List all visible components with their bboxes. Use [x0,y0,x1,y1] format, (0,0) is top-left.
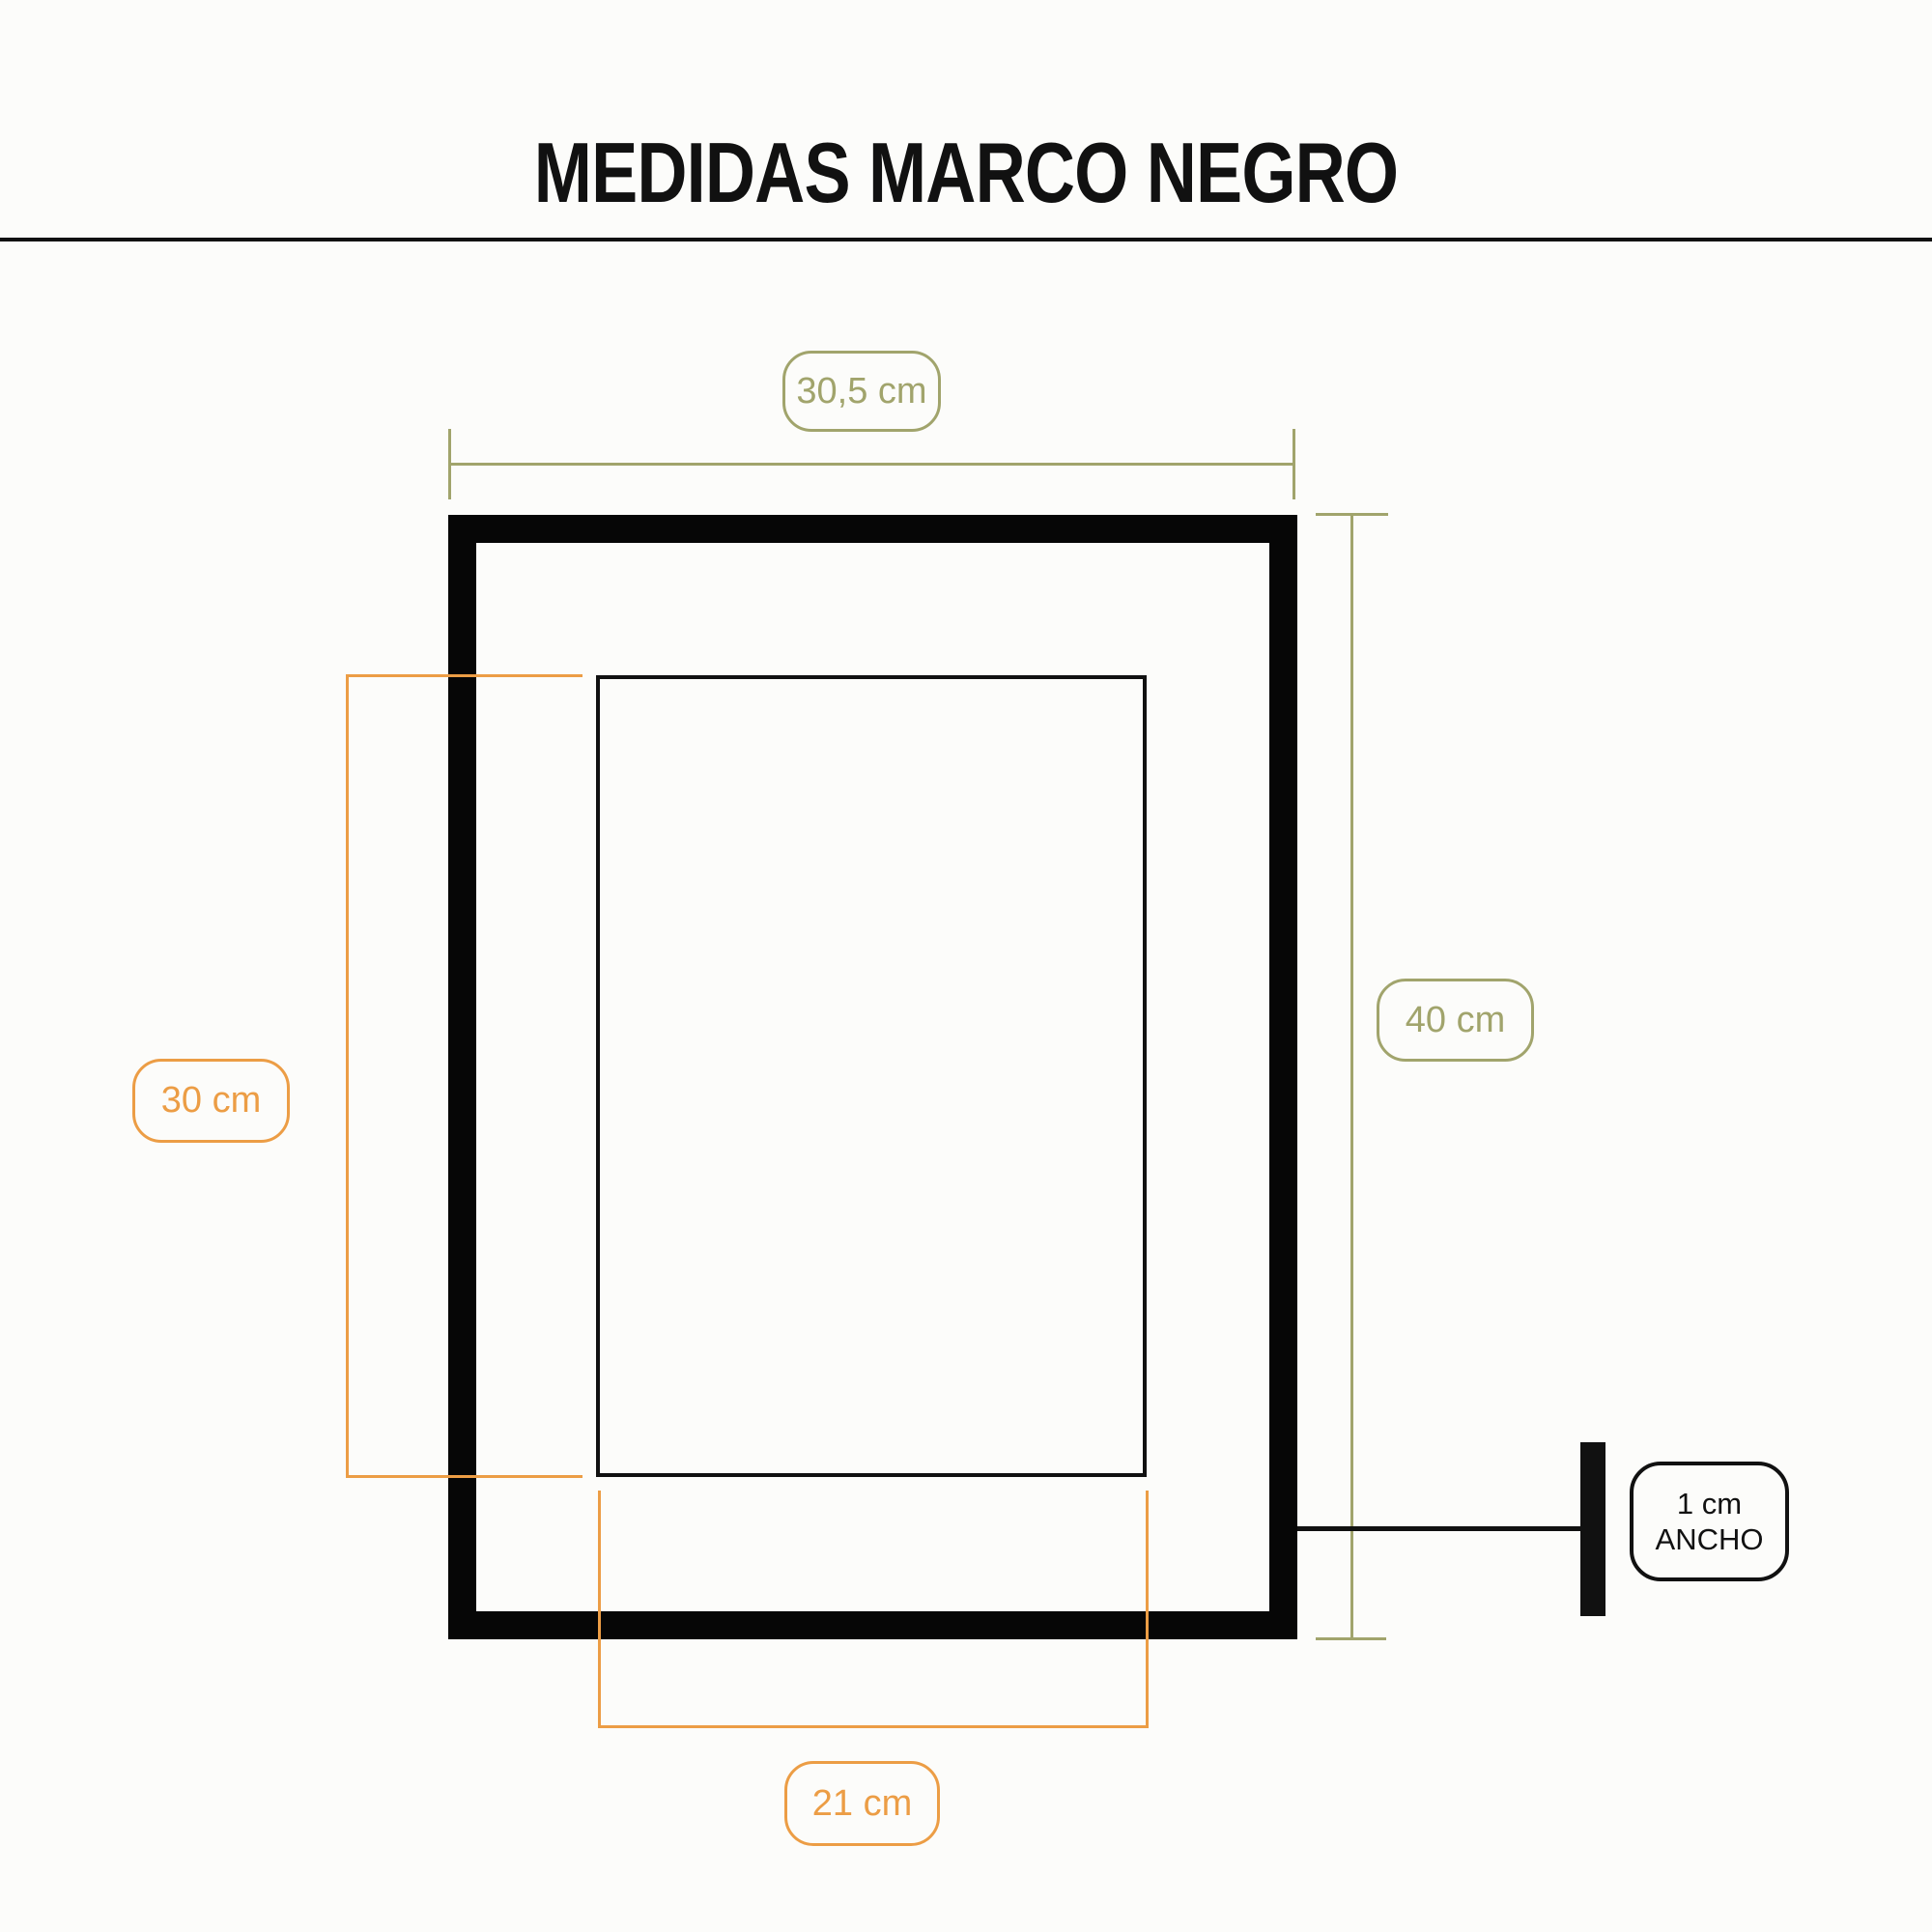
frame-width-dimension-tick-left [448,429,451,499]
frame-height-dimension-cap-bottom [1316,1637,1386,1640]
page-title: MEDIDAS MARCO NEGRO [534,124,1398,222]
opening-height-dimension-cap-top [346,674,582,677]
frame-width-dimension-tick-right [1293,429,1295,499]
frame-width-dimension-line [448,463,1295,466]
frame-height-label: 40 cm [1377,979,1534,1062]
measurement-diagram-page: MEDIDAS MARCO NEGRO 30,5 cm 40 cm 30 cm … [0,0,1932,1932]
opening-width-dimension-tick-right [1146,1491,1149,1728]
opening-height-dimension-cap-bottom [346,1475,582,1478]
frame-height-dimension-cap-top [1316,513,1388,516]
frame-depth-profile-bar [1580,1442,1605,1616]
frame-depth-connector-line [1297,1526,1581,1531]
opening-width-label: 21 cm [784,1761,940,1846]
frame-depth-value: 1 cm [1677,1486,1742,1521]
opening-height-dimension-line [346,675,349,1478]
frame-height-dimension-line [1350,514,1353,1640]
frame-depth-label: 1 cm ANCHO [1630,1462,1789,1581]
opening-width-dimension-line [598,1725,1149,1728]
opening-width-dimension-tick-left [598,1491,601,1728]
frame-depth-caption: ANCHO [1656,1521,1764,1557]
title-divider [0,238,1932,241]
opening-height-label: 30 cm [132,1059,290,1143]
frame-opening-outline [596,675,1147,1477]
frame-width-label: 30,5 cm [782,351,941,432]
